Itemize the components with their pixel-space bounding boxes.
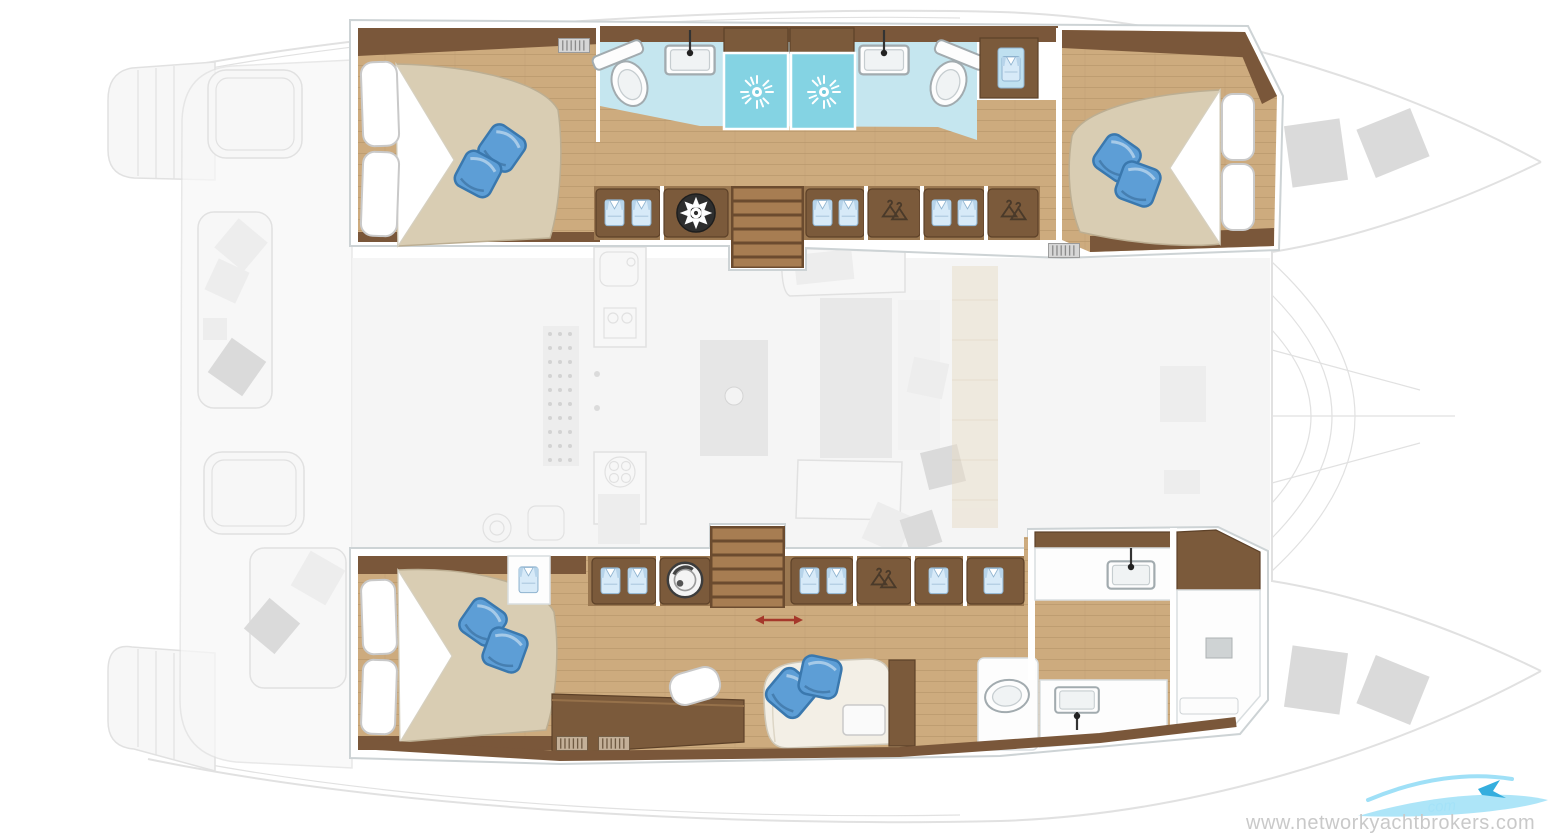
shirt-locker xyxy=(508,556,550,604)
cabinet-shirts xyxy=(791,558,853,604)
shirt-locker xyxy=(967,558,1024,604)
folded-shirt-icon xyxy=(605,200,624,226)
folded-shirt-icon xyxy=(813,200,832,226)
folded-shirt-icon xyxy=(601,568,620,594)
folded-shirt-icon xyxy=(984,568,1003,594)
cabinet-shirts xyxy=(596,189,660,237)
pillow xyxy=(1222,94,1254,160)
bulkhead xyxy=(1170,528,1177,728)
saloon-faded xyxy=(352,247,1270,554)
washing-machine-icon xyxy=(668,563,702,597)
nav-seat xyxy=(1164,470,1200,494)
folded-shirt-icon xyxy=(1002,57,1020,82)
folded-shirt-icon xyxy=(827,568,846,594)
hanging-locker xyxy=(868,189,920,237)
shower-drain-icon xyxy=(741,76,773,108)
shower-port-fwd xyxy=(791,53,855,129)
watermark-text: www.networkyachtbrokers.com xyxy=(1245,812,1535,833)
hanging-locker xyxy=(988,189,1038,237)
folded-shirt-icon xyxy=(800,568,819,594)
port-aft-cabin xyxy=(358,28,600,246)
sink-icon xyxy=(1055,687,1099,713)
shirt-locker xyxy=(915,558,963,604)
folded-shirt-icon xyxy=(519,567,538,593)
air-vent-icon xyxy=(559,38,590,52)
pillow xyxy=(361,61,400,146)
cockpit-table-aft-port xyxy=(208,70,302,158)
watermark: com www.networkyachtbrokers.com xyxy=(1245,776,1548,833)
trampoline-net xyxy=(1272,262,1455,571)
cushion xyxy=(203,318,227,340)
cabinet-strip xyxy=(1035,532,1172,548)
cabinet-shirts xyxy=(592,558,656,604)
sofa xyxy=(762,654,891,748)
folded-shirt-icon xyxy=(632,200,651,226)
bulkhead xyxy=(1028,530,1035,680)
side-table xyxy=(843,705,885,735)
cabinet-fan xyxy=(664,189,728,237)
pillow xyxy=(361,151,400,236)
vanity-shelf xyxy=(1180,698,1238,714)
hanging-locker xyxy=(857,558,911,604)
air-vent-icon xyxy=(1049,243,1080,257)
bathroom-wardrobe xyxy=(980,38,1038,98)
pillow xyxy=(361,579,398,654)
air-vent-icon xyxy=(557,736,588,750)
folded-shirt-icon xyxy=(628,568,647,594)
cockpit-faded xyxy=(180,60,352,768)
cabinet-shirts xyxy=(924,189,984,237)
port-hull xyxy=(350,20,1283,270)
folded-shirt-icon xyxy=(839,200,858,226)
fan-vent-icon xyxy=(677,194,715,232)
blue-pillow-icon xyxy=(797,654,843,700)
catamaran-layout-diagram: com www.networkyachtbrokers.com xyxy=(0,0,1560,833)
partition-cabinet xyxy=(889,660,915,746)
staircase-starboard xyxy=(710,526,785,608)
folded-shirt-icon xyxy=(929,568,948,594)
shower-drain-icon xyxy=(808,76,840,108)
saloon-walkway xyxy=(952,266,998,528)
nav-console xyxy=(1160,366,1206,422)
folded-shirt-icon xyxy=(958,200,977,226)
air-vent-icon xyxy=(599,736,630,750)
mirror xyxy=(1206,638,1232,658)
cockpit-table-mid xyxy=(204,452,304,534)
staircase-port xyxy=(731,186,804,268)
washing-machine xyxy=(660,558,710,604)
starboard-deck-line xyxy=(200,763,960,816)
floor-plan-canvas: com www.networkyachtbrokers.com xyxy=(0,0,1560,833)
cabinet-shirts xyxy=(806,189,864,237)
folded-shirt-icon xyxy=(932,200,951,226)
starboard-hull xyxy=(350,524,1268,764)
pillow xyxy=(361,659,398,734)
double-bed xyxy=(361,61,561,246)
brand-logo-wave: com xyxy=(1358,776,1548,816)
port-forward-cabin xyxy=(1049,30,1277,258)
pillow xyxy=(1222,164,1254,230)
saloon-island xyxy=(700,340,768,456)
shower-port-aft xyxy=(724,53,788,129)
